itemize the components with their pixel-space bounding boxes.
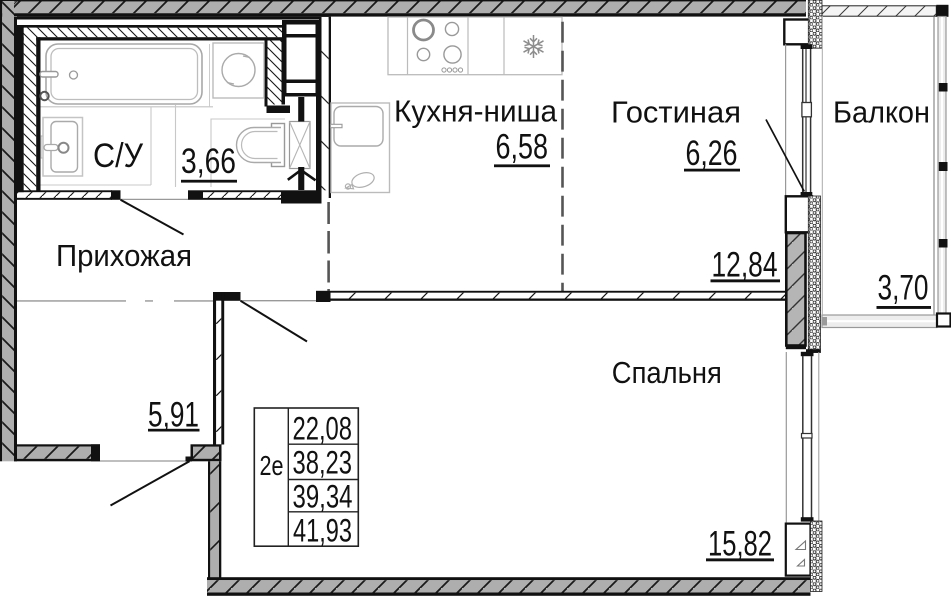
- svg-text:38,23: 38,23: [293, 444, 353, 480]
- svg-text:2е: 2е: [260, 450, 284, 481]
- svg-text:С/У: С/У: [93, 137, 143, 175]
- svg-text:12,84: 12,84: [712, 246, 778, 285]
- svg-text:3,70: 3,70: [878, 269, 929, 308]
- svg-text:6,26: 6,26: [686, 134, 738, 173]
- svg-text:6,58: 6,58: [496, 128, 549, 167]
- svg-text:Кухня-ниша: Кухня-ниша: [394, 94, 558, 129]
- svg-text:3,66: 3,66: [181, 142, 236, 181]
- svg-text:41,93: 41,93: [293, 513, 352, 549]
- svg-text:22,08: 22,08: [293, 410, 353, 446]
- svg-text:Прихожая: Прихожая: [56, 238, 192, 273]
- svg-text:Спальня: Спальня: [612, 355, 722, 390]
- svg-text:Балкон: Балкон: [833, 95, 930, 130]
- svg-text:39,34: 39,34: [293, 479, 353, 515]
- svg-text:Гостиная: Гостиная: [611, 95, 741, 130]
- svg-text:15,82: 15,82: [708, 525, 772, 564]
